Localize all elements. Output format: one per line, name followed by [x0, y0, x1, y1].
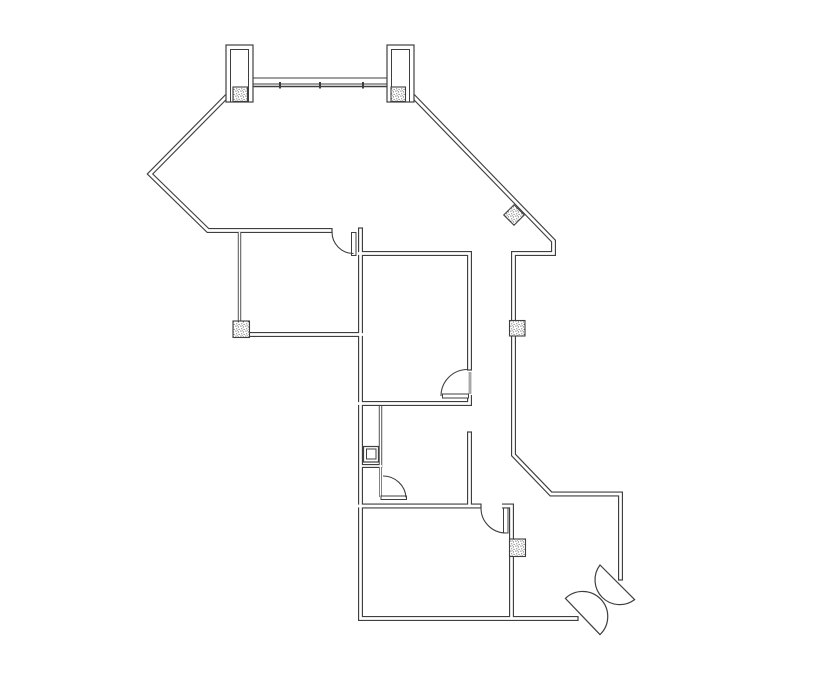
- door-bottom-room-swing: [481, 508, 506, 533]
- door-bathroom-leaf: [381, 496, 407, 500]
- interior-wall-core: [358, 254, 470, 371]
- door-bathroom-swing: [383, 476, 406, 498]
- column: [233, 87, 248, 102]
- column: [391, 87, 406, 102]
- door-middle-room-leaf: [443, 394, 469, 398]
- door-middle-room-swing: [441, 370, 468, 397]
- exterior-wall: [150, 96, 332, 231]
- column: [510, 321, 526, 337]
- door-top-left-room-swing: [332, 232, 354, 254]
- column: [233, 321, 250, 338]
- column: [510, 539, 526, 557]
- floor-plan-page: [0, 0, 835, 678]
- door-bottom-room-leaf: [504, 508, 509, 533]
- double-entry-door-leaf: [565, 591, 607, 634]
- door-top-left-room-leaf: [352, 233, 357, 256]
- floor-plan-canvas: [0, 0, 835, 678]
- exterior-wall-core: [150, 96, 332, 231]
- interior-wall: [358, 254, 470, 371]
